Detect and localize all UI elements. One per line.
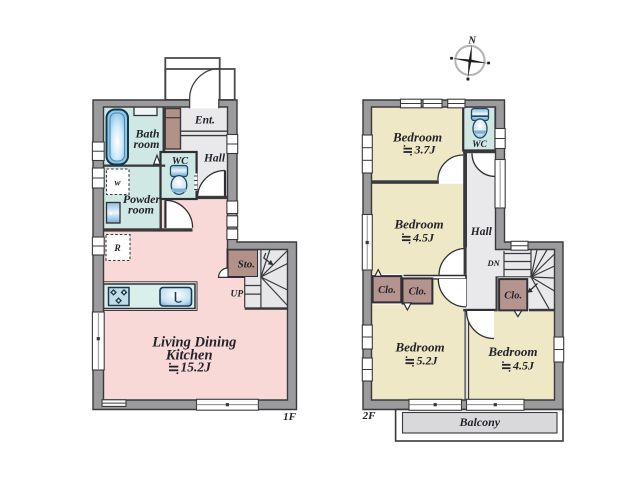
svg-text:R: R [113,244,120,254]
svg-text:Hall: Hall [203,153,226,165]
svg-text:1F: 1F [283,411,297,423]
svg-text:4.5J: 4.5J [512,359,535,373]
svg-text:Clo.: Clo. [409,287,427,298]
svg-text:5.2J: 5.2J [417,354,439,368]
svg-text:2F: 2F [362,410,377,422]
svg-text:room: room [128,203,154,217]
svg-text:Ent.: Ent. [194,115,215,127]
svg-text:Bedroom: Bedroom [394,340,444,355]
svg-text:N: N [467,36,476,47]
svg-text:Clo.: Clo. [378,285,396,296]
svg-text:Hall: Hall [470,226,493,238]
svg-text:15.2J: 15.2J [181,360,213,375]
svg-text:room: room [133,137,159,151]
svg-text:DN: DN [487,258,501,268]
svg-text:Bedroom: Bedroom [487,344,537,359]
svg-text:WC: WC [172,156,189,167]
svg-text:w: w [114,178,121,188]
svg-text:Clo.: Clo. [504,291,522,302]
svg-text:4.5J: 4.5J [412,231,435,245]
svg-text:WC: WC [472,140,487,150]
svg-text:Sto.: Sto. [238,259,255,271]
svg-text:Balcony: Balcony [458,415,500,429]
svg-text:UP: UP [230,290,243,300]
svg-text:Bedroom: Bedroom [393,217,443,232]
svg-text:3.7J: 3.7J [414,142,437,156]
